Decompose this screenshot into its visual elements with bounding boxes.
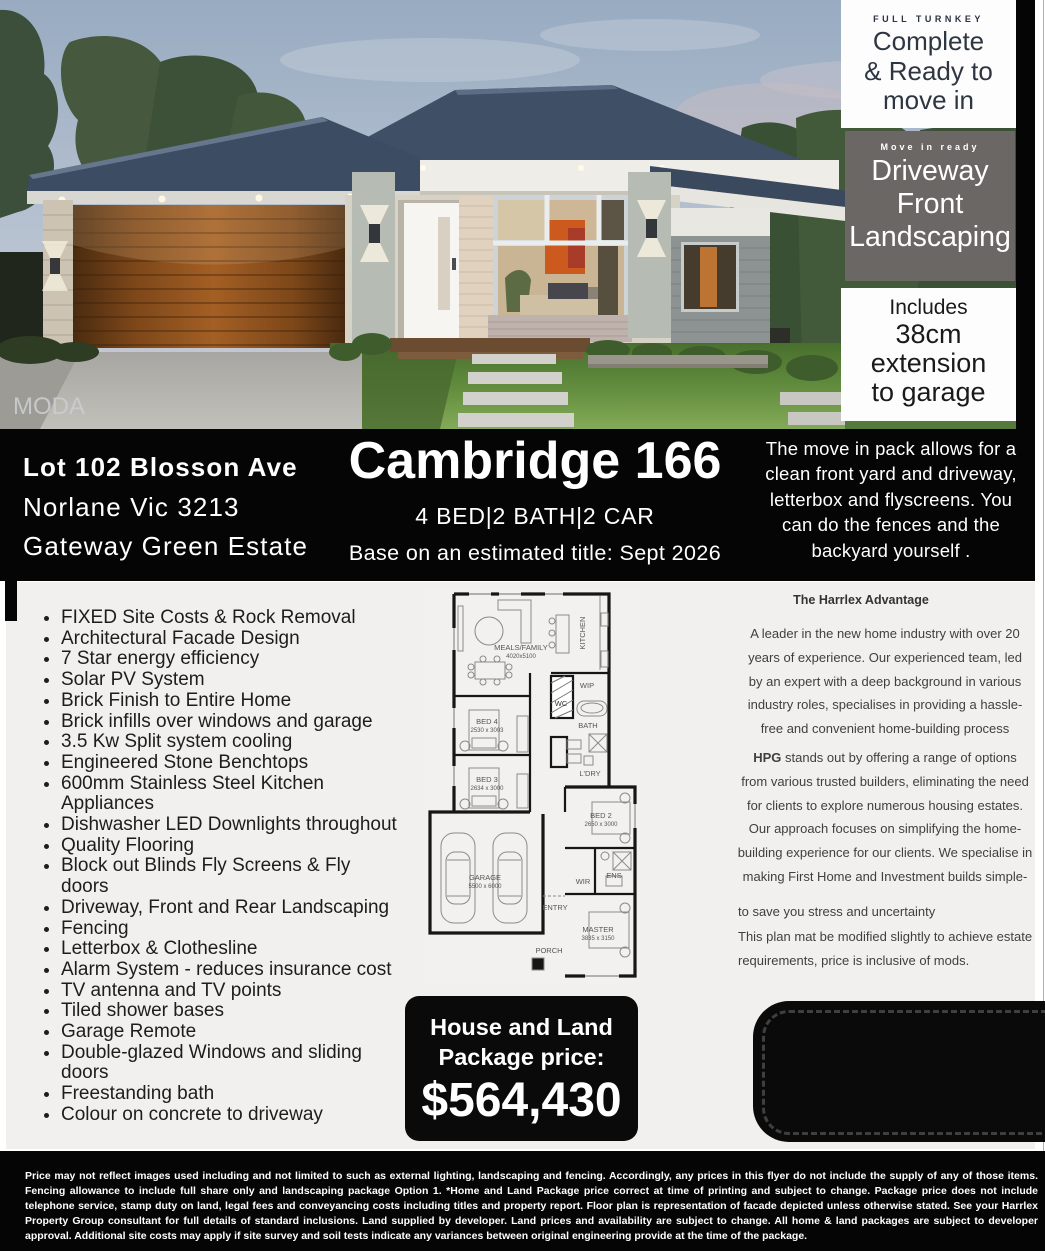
svg-text:L'DRY: L'DRY bbox=[579, 769, 600, 778]
svg-text:2530 x 3003: 2530 x 3003 bbox=[470, 728, 504, 734]
svg-text:4020x5100: 4020x5100 bbox=[506, 654, 536, 660]
svg-text:GARAGE: GARAGE bbox=[469, 873, 501, 882]
svg-text:ENS: ENS bbox=[606, 871, 621, 880]
svg-text:3835 x 3150: 3835 x 3150 bbox=[581, 936, 615, 942]
svg-text:PORCH: PORCH bbox=[535, 946, 562, 955]
svg-text:2634 x 3000: 2634 x 3000 bbox=[470, 786, 504, 792]
svg-text:MEALS/FAMILY: MEALS/FAMILY bbox=[494, 643, 548, 652]
svg-text:ENTRY: ENTRY bbox=[542, 903, 567, 912]
svg-text:BED 4: BED 4 bbox=[476, 717, 498, 726]
svg-text:WC: WC bbox=[555, 699, 568, 708]
svg-text:5500 x 6000: 5500 x 6000 bbox=[468, 884, 502, 890]
svg-text:KITCHEN: KITCHEN bbox=[578, 617, 587, 650]
svg-text:BED 3: BED 3 bbox=[476, 775, 498, 784]
svg-text:2650 x 3000: 2650 x 3000 bbox=[584, 822, 618, 828]
svg-text:MODA: MODA bbox=[13, 393, 85, 420]
svg-text:BED 2: BED 2 bbox=[590, 811, 612, 820]
svg-text:MASTER: MASTER bbox=[582, 925, 614, 934]
svg-text:WIP: WIP bbox=[580, 681, 594, 690]
svg-text:WIR: WIR bbox=[576, 877, 591, 886]
svg-text:BATH: BATH bbox=[578, 721, 597, 730]
